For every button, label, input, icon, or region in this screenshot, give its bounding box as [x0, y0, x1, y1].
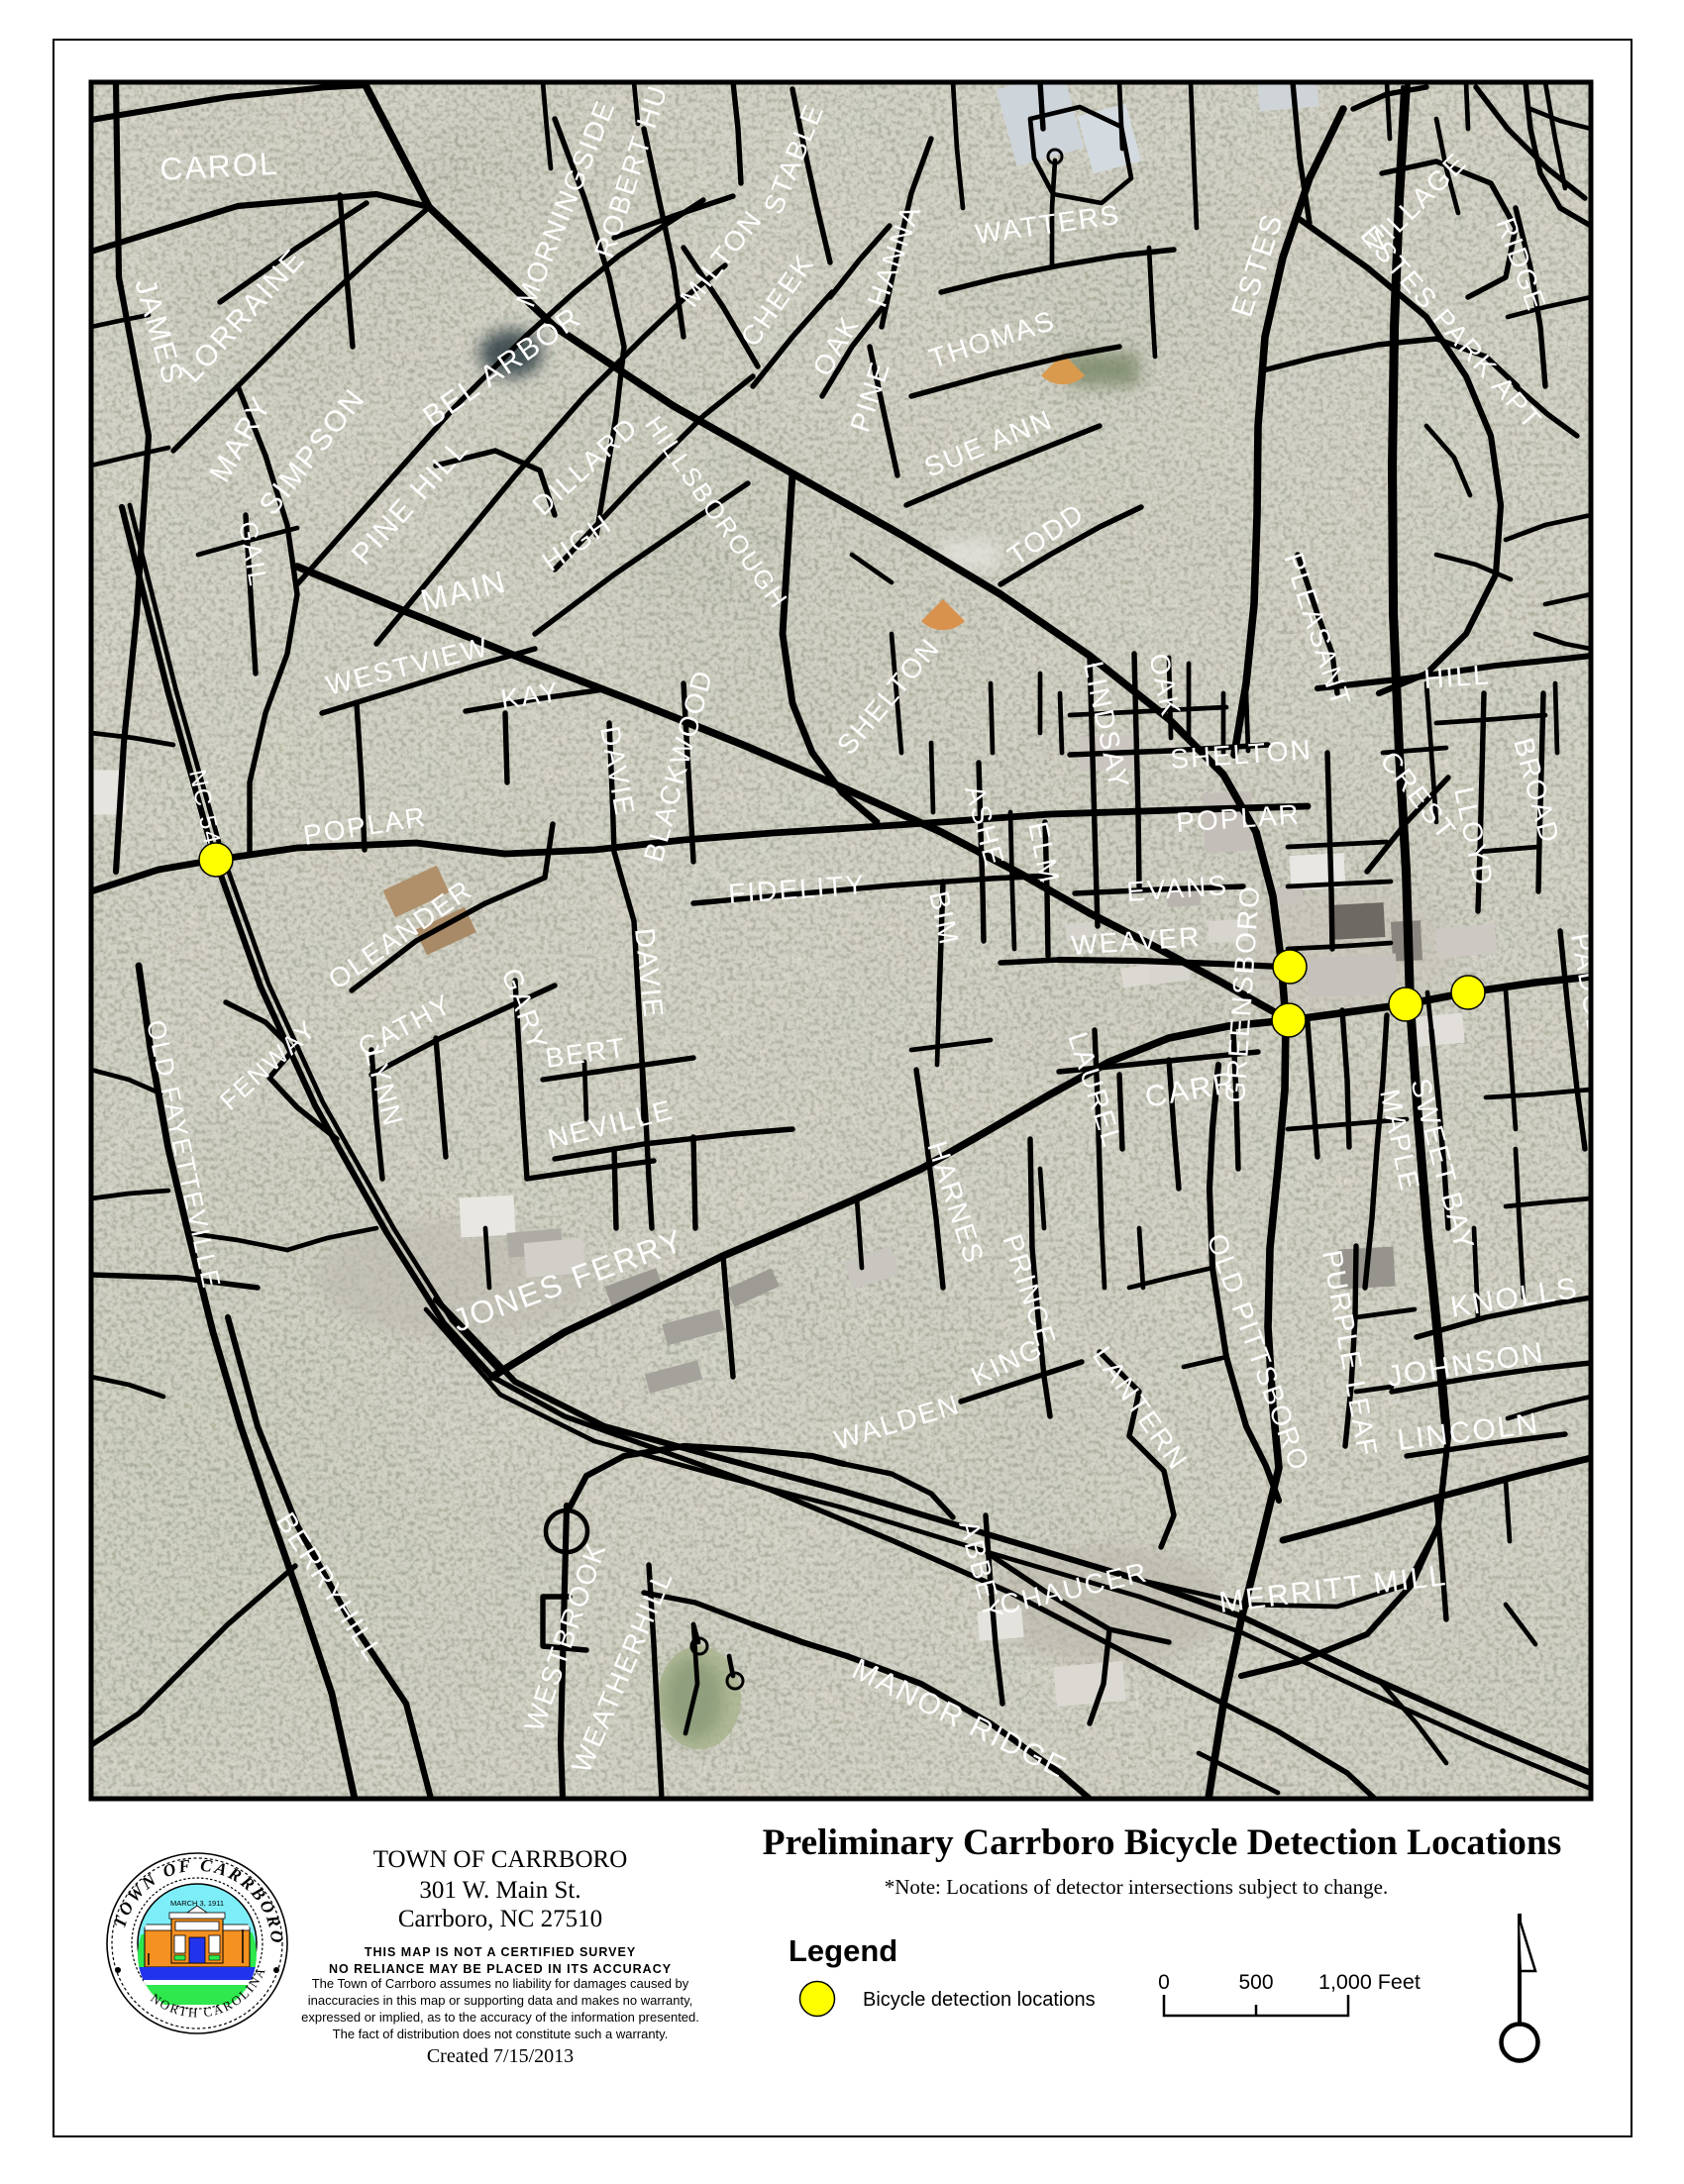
svg-text:TOWN OF CARRBORO: TOWN OF CARRBORO [373, 1846, 628, 1873]
svg-text:The Town of Carrboro assumes n: The Town of Carrboro assumes no liabilit… [312, 1976, 689, 1991]
svg-text:0: 0 [1158, 1971, 1170, 1994]
svg-text:expressed or implied, as to th: expressed or implied, as to the accuracy… [301, 2010, 699, 2025]
svg-text:The fact of distribution does: The fact of distribution does not consti… [333, 2027, 669, 2041]
svg-text:Created 7/15/2013: Created 7/15/2013 [427, 2045, 574, 2067]
svg-text:inaccuracies in this map or su: inaccuracies in this map or supporting d… [308, 1993, 693, 2008]
svg-text:Preliminary Carrboro Bicycle D: Preliminary Carrboro Bicycle Detection L… [763, 1822, 1562, 1863]
svg-text:HILL: HILL [1422, 659, 1491, 694]
svg-text:Legend: Legend [789, 1933, 897, 1968]
svg-text:THIS MAP IS NOT A CERTIFIED SU: THIS MAP IS NOT A CERTIFIED SURVEY [365, 1945, 636, 1959]
svg-text:1,000 Feet: 1,000 Feet [1318, 1970, 1421, 1994]
svg-text:*Note: Locations of detector i: *Note: Locations of detector intersectio… [885, 1875, 1389, 1899]
svg-text:500: 500 [1238, 1971, 1273, 1994]
svg-text:NO RELIANCE MAY BE PLACED IN I: NO RELIANCE MAY BE PLACED IN ITS ACCURAC… [329, 1962, 672, 1976]
svg-text:CAROL: CAROL [158, 146, 279, 187]
svg-text:301 W. Main St.: 301 W. Main St. [419, 1877, 580, 1904]
svg-text:Bicycle detection locations: Bicycle detection locations [863, 1989, 1096, 2011]
svg-text:MARCH 3, 1911: MARCH 3, 1911 [170, 1899, 224, 1908]
svg-text:Carrboro, NC 27510: Carrboro, NC 27510 [398, 1906, 602, 1932]
